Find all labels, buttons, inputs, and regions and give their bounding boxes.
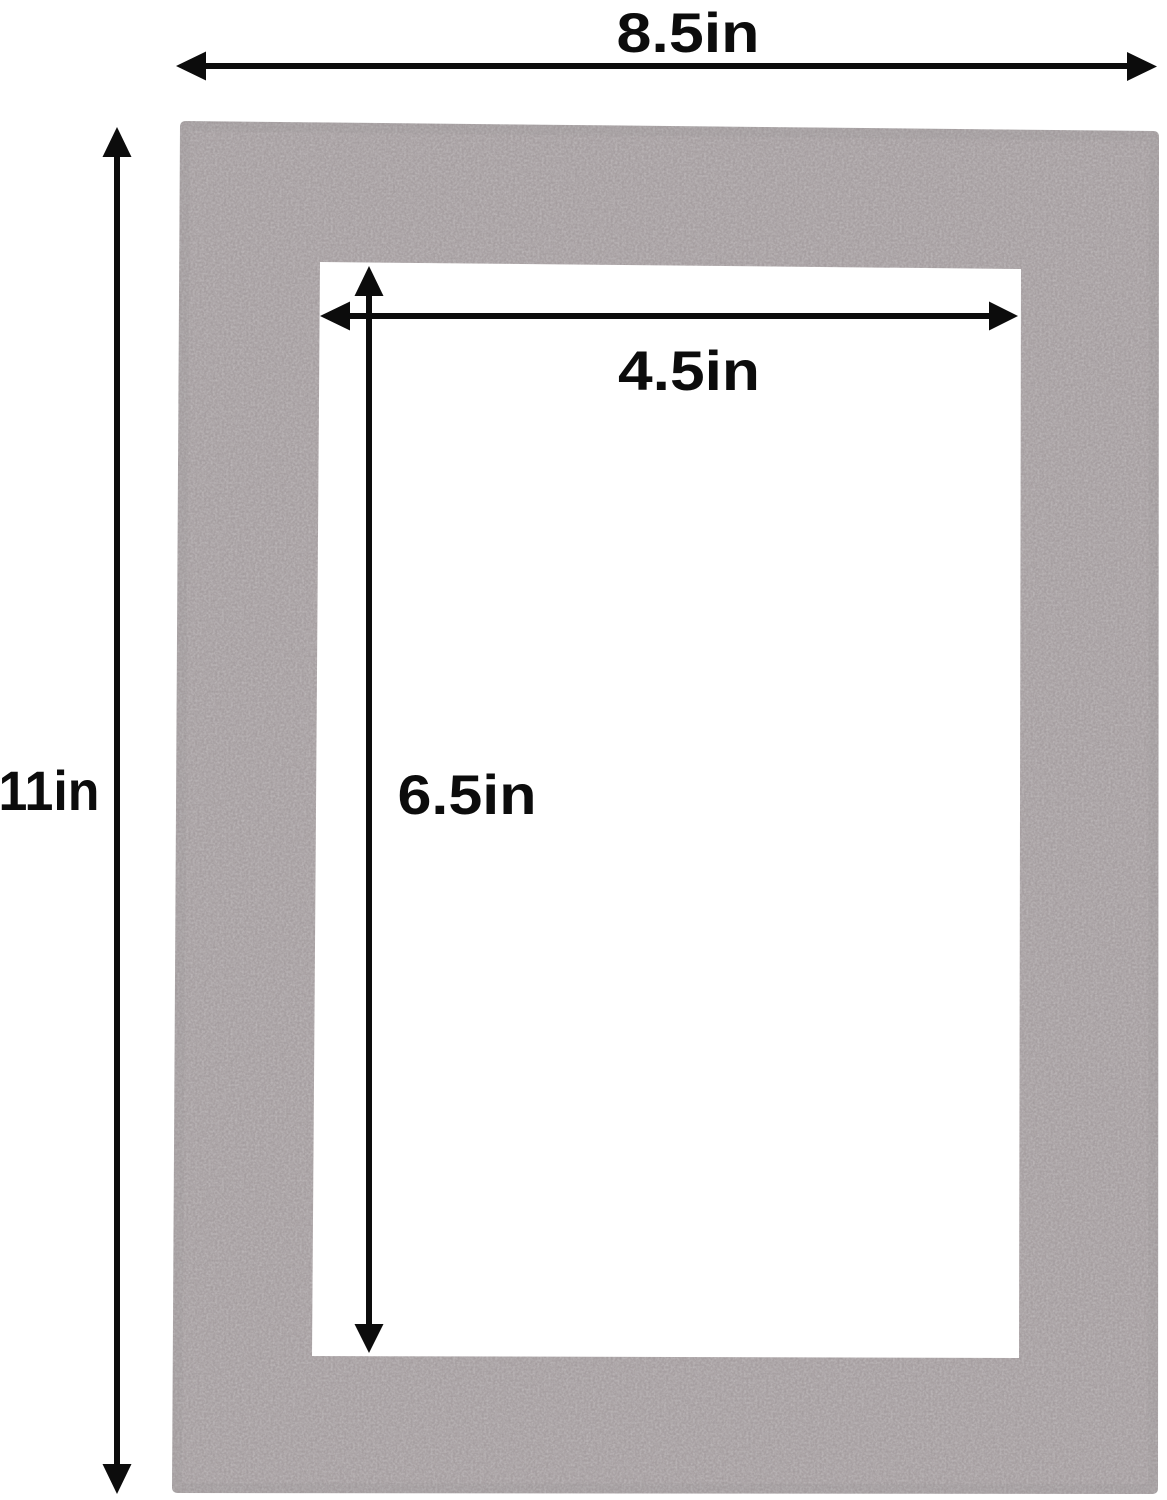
svg-text:4.5in: 4.5in [618,339,760,402]
svg-text:11in: 11in [0,759,100,822]
svg-text:6.5in: 6.5in [398,763,537,826]
svg-text:8.5in: 8.5in [617,1,760,64]
